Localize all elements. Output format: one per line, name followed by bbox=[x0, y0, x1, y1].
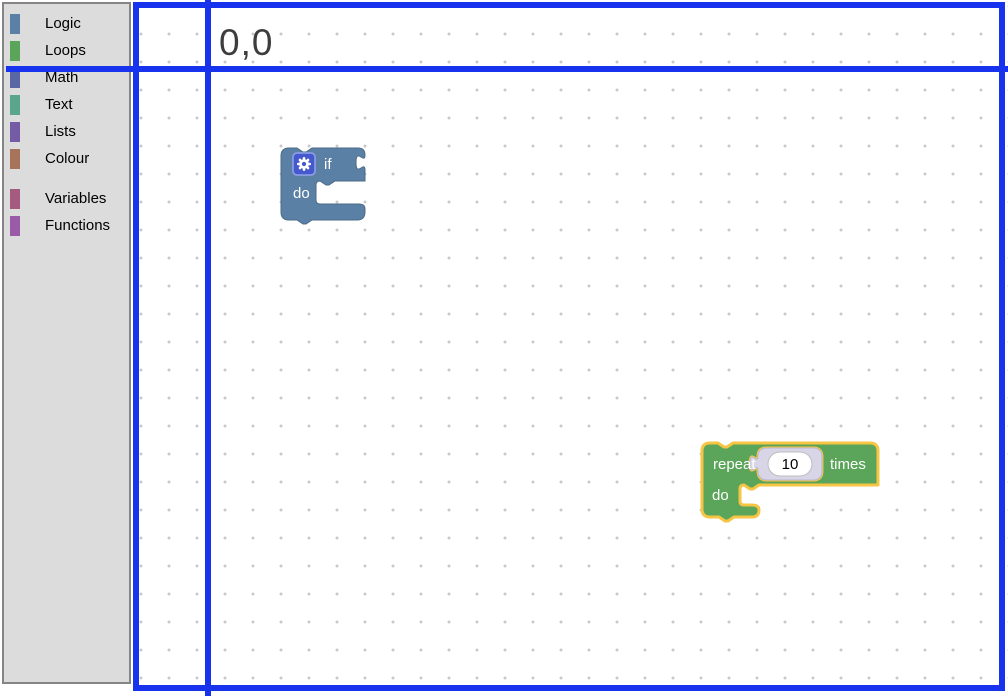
category-variables[interactable]: Variables bbox=[4, 185, 129, 212]
workspace-canvas[interactable] bbox=[130, 0, 1008, 696]
origin-vertical-line bbox=[205, 0, 211, 696]
repeat-label: repeat bbox=[713, 456, 756, 473]
do-label: do bbox=[293, 185, 310, 202]
category-label: Variables bbox=[45, 190, 106, 207]
number-shadow-block[interactable]: 10 bbox=[750, 448, 822, 480]
origin-coordinate-label: 0,0 bbox=[219, 22, 273, 64]
category-label: Functions bbox=[45, 217, 110, 234]
mutator-gear-icon[interactable] bbox=[293, 153, 315, 175]
times-label: times bbox=[830, 456, 866, 473]
category-color-bar bbox=[10, 14, 20, 34]
category-color-bar bbox=[10, 149, 20, 169]
category-color-bar bbox=[10, 189, 20, 209]
number-field-value[interactable]: 10 bbox=[782, 456, 799, 473]
category-color-bar bbox=[10, 216, 20, 236]
category-lists[interactable]: Lists bbox=[4, 118, 129, 145]
blockly-app: Logic Loops Math Text Lists Colour Varia… bbox=[0, 0, 1008, 696]
toolbox-sidebar: Logic Loops Math Text Lists Colour Varia… bbox=[2, 2, 131, 684]
category-label: Logic bbox=[45, 15, 81, 32]
category-loops[interactable]: Loops bbox=[4, 37, 129, 64]
category-text[interactable]: Text bbox=[4, 91, 129, 118]
category-label: Text bbox=[45, 96, 73, 113]
origin-horizontal-line bbox=[6, 66, 1008, 72]
category-logic[interactable]: Logic bbox=[4, 10, 129, 37]
repeat-block[interactable]: 10 repeat times do bbox=[700, 441, 892, 529]
if-block[interactable]: if do bbox=[280, 147, 372, 229]
category-label: Colour bbox=[45, 150, 89, 167]
category-color-bar bbox=[10, 95, 20, 115]
if-label: if bbox=[324, 156, 332, 173]
do-label: do bbox=[712, 487, 729, 504]
category-label: Loops bbox=[45, 42, 86, 59]
category-color-bar bbox=[10, 41, 20, 61]
category-color-bar bbox=[10, 122, 20, 142]
category-label: Lists bbox=[45, 123, 76, 140]
category-functions[interactable]: Functions bbox=[4, 212, 129, 239]
category-colour[interactable]: Colour bbox=[4, 145, 129, 172]
